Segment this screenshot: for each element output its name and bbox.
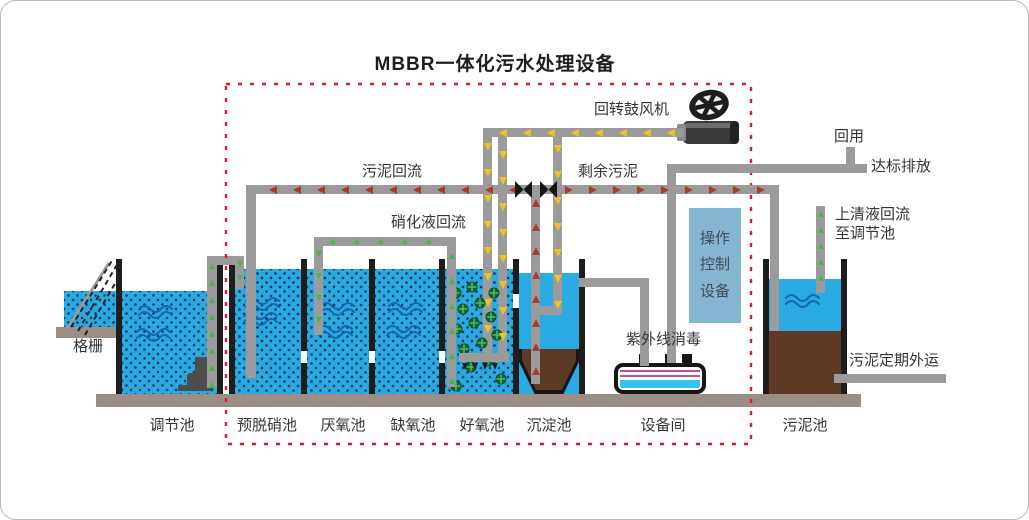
flow-arrow bbox=[461, 186, 469, 194]
flow-arrow bbox=[499, 177, 507, 185]
flow-arrow bbox=[437, 186, 445, 194]
flow-arrow bbox=[499, 151, 507, 159]
flow-arrow bbox=[293, 186, 301, 194]
flow-arrow bbox=[316, 317, 322, 323]
flow-arrow bbox=[269, 186, 277, 194]
discharge-main-pipe bbox=[667, 164, 867, 173]
tank-label-equipment-room: 设备间 bbox=[615, 414, 711, 435]
flow-arrow bbox=[554, 301, 562, 309]
flow-arrow bbox=[532, 199, 540, 207]
flow-arrow bbox=[532, 319, 540, 327]
flow-arrow bbox=[209, 365, 215, 371]
flow-arrow bbox=[499, 281, 507, 289]
flow-arrow bbox=[484, 325, 492, 333]
flow-arrow bbox=[499, 255, 507, 263]
flow-arrow bbox=[484, 195, 492, 203]
uv-label: 紫外线消毒 bbox=[626, 331, 701, 350]
flow-arrow bbox=[499, 229, 507, 237]
flow-arrow bbox=[484, 143, 492, 151]
flow-arrow bbox=[449, 353, 455, 359]
flow-arrow bbox=[365, 186, 373, 194]
valve-icon bbox=[540, 181, 557, 198]
sludge-out-label: 污泥定期外运 bbox=[849, 352, 939, 371]
flow-arrow bbox=[554, 249, 562, 257]
flow-arrow bbox=[532, 367, 540, 375]
flow-arrow bbox=[209, 348, 215, 354]
flow-arrow bbox=[484, 273, 492, 281]
flow-arrow bbox=[485, 186, 493, 194]
flow-arrow bbox=[532, 223, 540, 231]
flow-arrow bbox=[554, 275, 562, 283]
flow-arrow bbox=[499, 203, 507, 211]
flow-arrow bbox=[389, 186, 397, 194]
flow-arrow bbox=[565, 186, 573, 194]
flow-arrow bbox=[733, 186, 741, 194]
flow-arrow bbox=[425, 239, 431, 245]
flow-arrow bbox=[523, 129, 531, 137]
nitrification-return-label: 硝化液回流 bbox=[391, 214, 466, 233]
flow-arrow bbox=[757, 186, 765, 194]
valve-icon bbox=[515, 181, 532, 198]
flow-arrow bbox=[818, 227, 824, 233]
flow-arrow bbox=[449, 328, 455, 334]
flow-arrow bbox=[209, 331, 215, 337]
page-title: MBBR一体化污水处理设备 bbox=[325, 49, 665, 76]
flow-arrow bbox=[401, 239, 407, 245]
flow-arrow bbox=[209, 263, 215, 269]
flow-arrow bbox=[499, 333, 507, 341]
process-boundary bbox=[1, 1, 1028, 519]
flow-arrow bbox=[571, 129, 579, 137]
sludge-return-label: 污泥回流 bbox=[362, 163, 422, 182]
flow-arrow bbox=[209, 280, 215, 286]
flow-arrow bbox=[237, 275, 243, 281]
blower-label: 回转鼓风机 bbox=[594, 101, 669, 120]
reuse-label: 回用 bbox=[834, 128, 864, 147]
flow-arrow bbox=[209, 382, 215, 388]
flow-arrow bbox=[589, 186, 597, 194]
flow-arrow bbox=[449, 253, 455, 259]
flow-arrow bbox=[685, 186, 693, 194]
flow-arrow bbox=[237, 261, 243, 267]
diagram-canvas: MBBR一体化污水处理设备 格栅 bbox=[0, 0, 1029, 520]
flow-arrow bbox=[547, 129, 555, 137]
flow-arrow bbox=[554, 171, 562, 179]
flow-arrow bbox=[484, 299, 492, 307]
supernatant-return-label: 上清液回流 至调节池 bbox=[835, 206, 910, 244]
flow-arrow bbox=[209, 297, 215, 303]
flow-arrow bbox=[709, 186, 717, 194]
flow-arrow bbox=[316, 273, 322, 279]
reuse-stub-pipe bbox=[846, 147, 855, 167]
flow-arrow bbox=[316, 295, 322, 301]
tank-label-regulating: 调节池 bbox=[124, 414, 220, 435]
flow-arrow bbox=[484, 221, 492, 229]
flow-arrow bbox=[818, 211, 824, 217]
grid-screen-label: 格栅 bbox=[73, 338, 103, 357]
flow-arrow bbox=[317, 186, 325, 194]
flow-arrow bbox=[595, 129, 603, 137]
flow-arrow bbox=[449, 378, 455, 384]
flow-arrow bbox=[643, 129, 651, 137]
excess-sludge-label: 剩余污泥 bbox=[578, 163, 638, 182]
flow-arrow bbox=[413, 186, 421, 194]
flow-arrow bbox=[554, 145, 562, 153]
tank-label-sludge: 污泥池 bbox=[757, 414, 853, 435]
flow-arrow bbox=[818, 275, 824, 281]
flow-arrow bbox=[532, 271, 540, 279]
flow-arrow bbox=[484, 169, 492, 177]
flow-arrow bbox=[449, 278, 455, 284]
flow-arrow bbox=[532, 247, 540, 255]
flow-arrow bbox=[499, 307, 507, 315]
flow-arrow bbox=[613, 186, 621, 194]
flow-arrow bbox=[499, 129, 507, 137]
flow-arrow bbox=[637, 186, 645, 194]
flow-arrow bbox=[353, 239, 359, 245]
flow-arrow bbox=[818, 243, 824, 249]
flow-arrow bbox=[484, 247, 492, 255]
flow-arrow bbox=[209, 314, 215, 320]
flow-arrow bbox=[532, 295, 540, 303]
discharge-label: 达标排放 bbox=[871, 158, 931, 177]
flow-arrow bbox=[554, 223, 562, 231]
flow-arrow bbox=[554, 197, 562, 205]
flow-arrow bbox=[449, 303, 455, 309]
tank-label-sedimentation: 沉淀池 bbox=[501, 414, 597, 435]
flow-arrow bbox=[329, 239, 335, 245]
flow-arrow bbox=[532, 343, 540, 351]
flow-arrow bbox=[619, 129, 627, 137]
sed-outlet-pipe bbox=[579, 278, 649, 287]
flow-arrow bbox=[661, 186, 669, 194]
flow-arrow bbox=[818, 259, 824, 265]
flow-arrow bbox=[667, 129, 675, 137]
flow-arrow bbox=[341, 186, 349, 194]
flow-arrow bbox=[377, 239, 383, 245]
flow-arrow bbox=[316, 251, 322, 257]
